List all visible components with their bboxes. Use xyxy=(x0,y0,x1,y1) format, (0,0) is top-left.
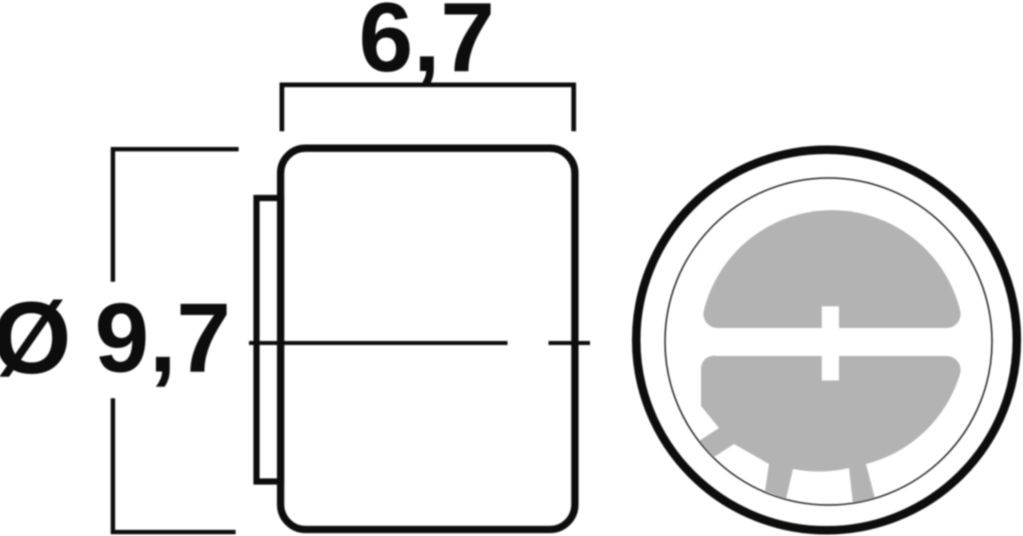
svg-text:9,7: 9,7 xyxy=(95,282,231,392)
svg-text:Ø: Ø xyxy=(0,281,71,395)
svg-text:6,7: 6,7 xyxy=(359,0,495,92)
